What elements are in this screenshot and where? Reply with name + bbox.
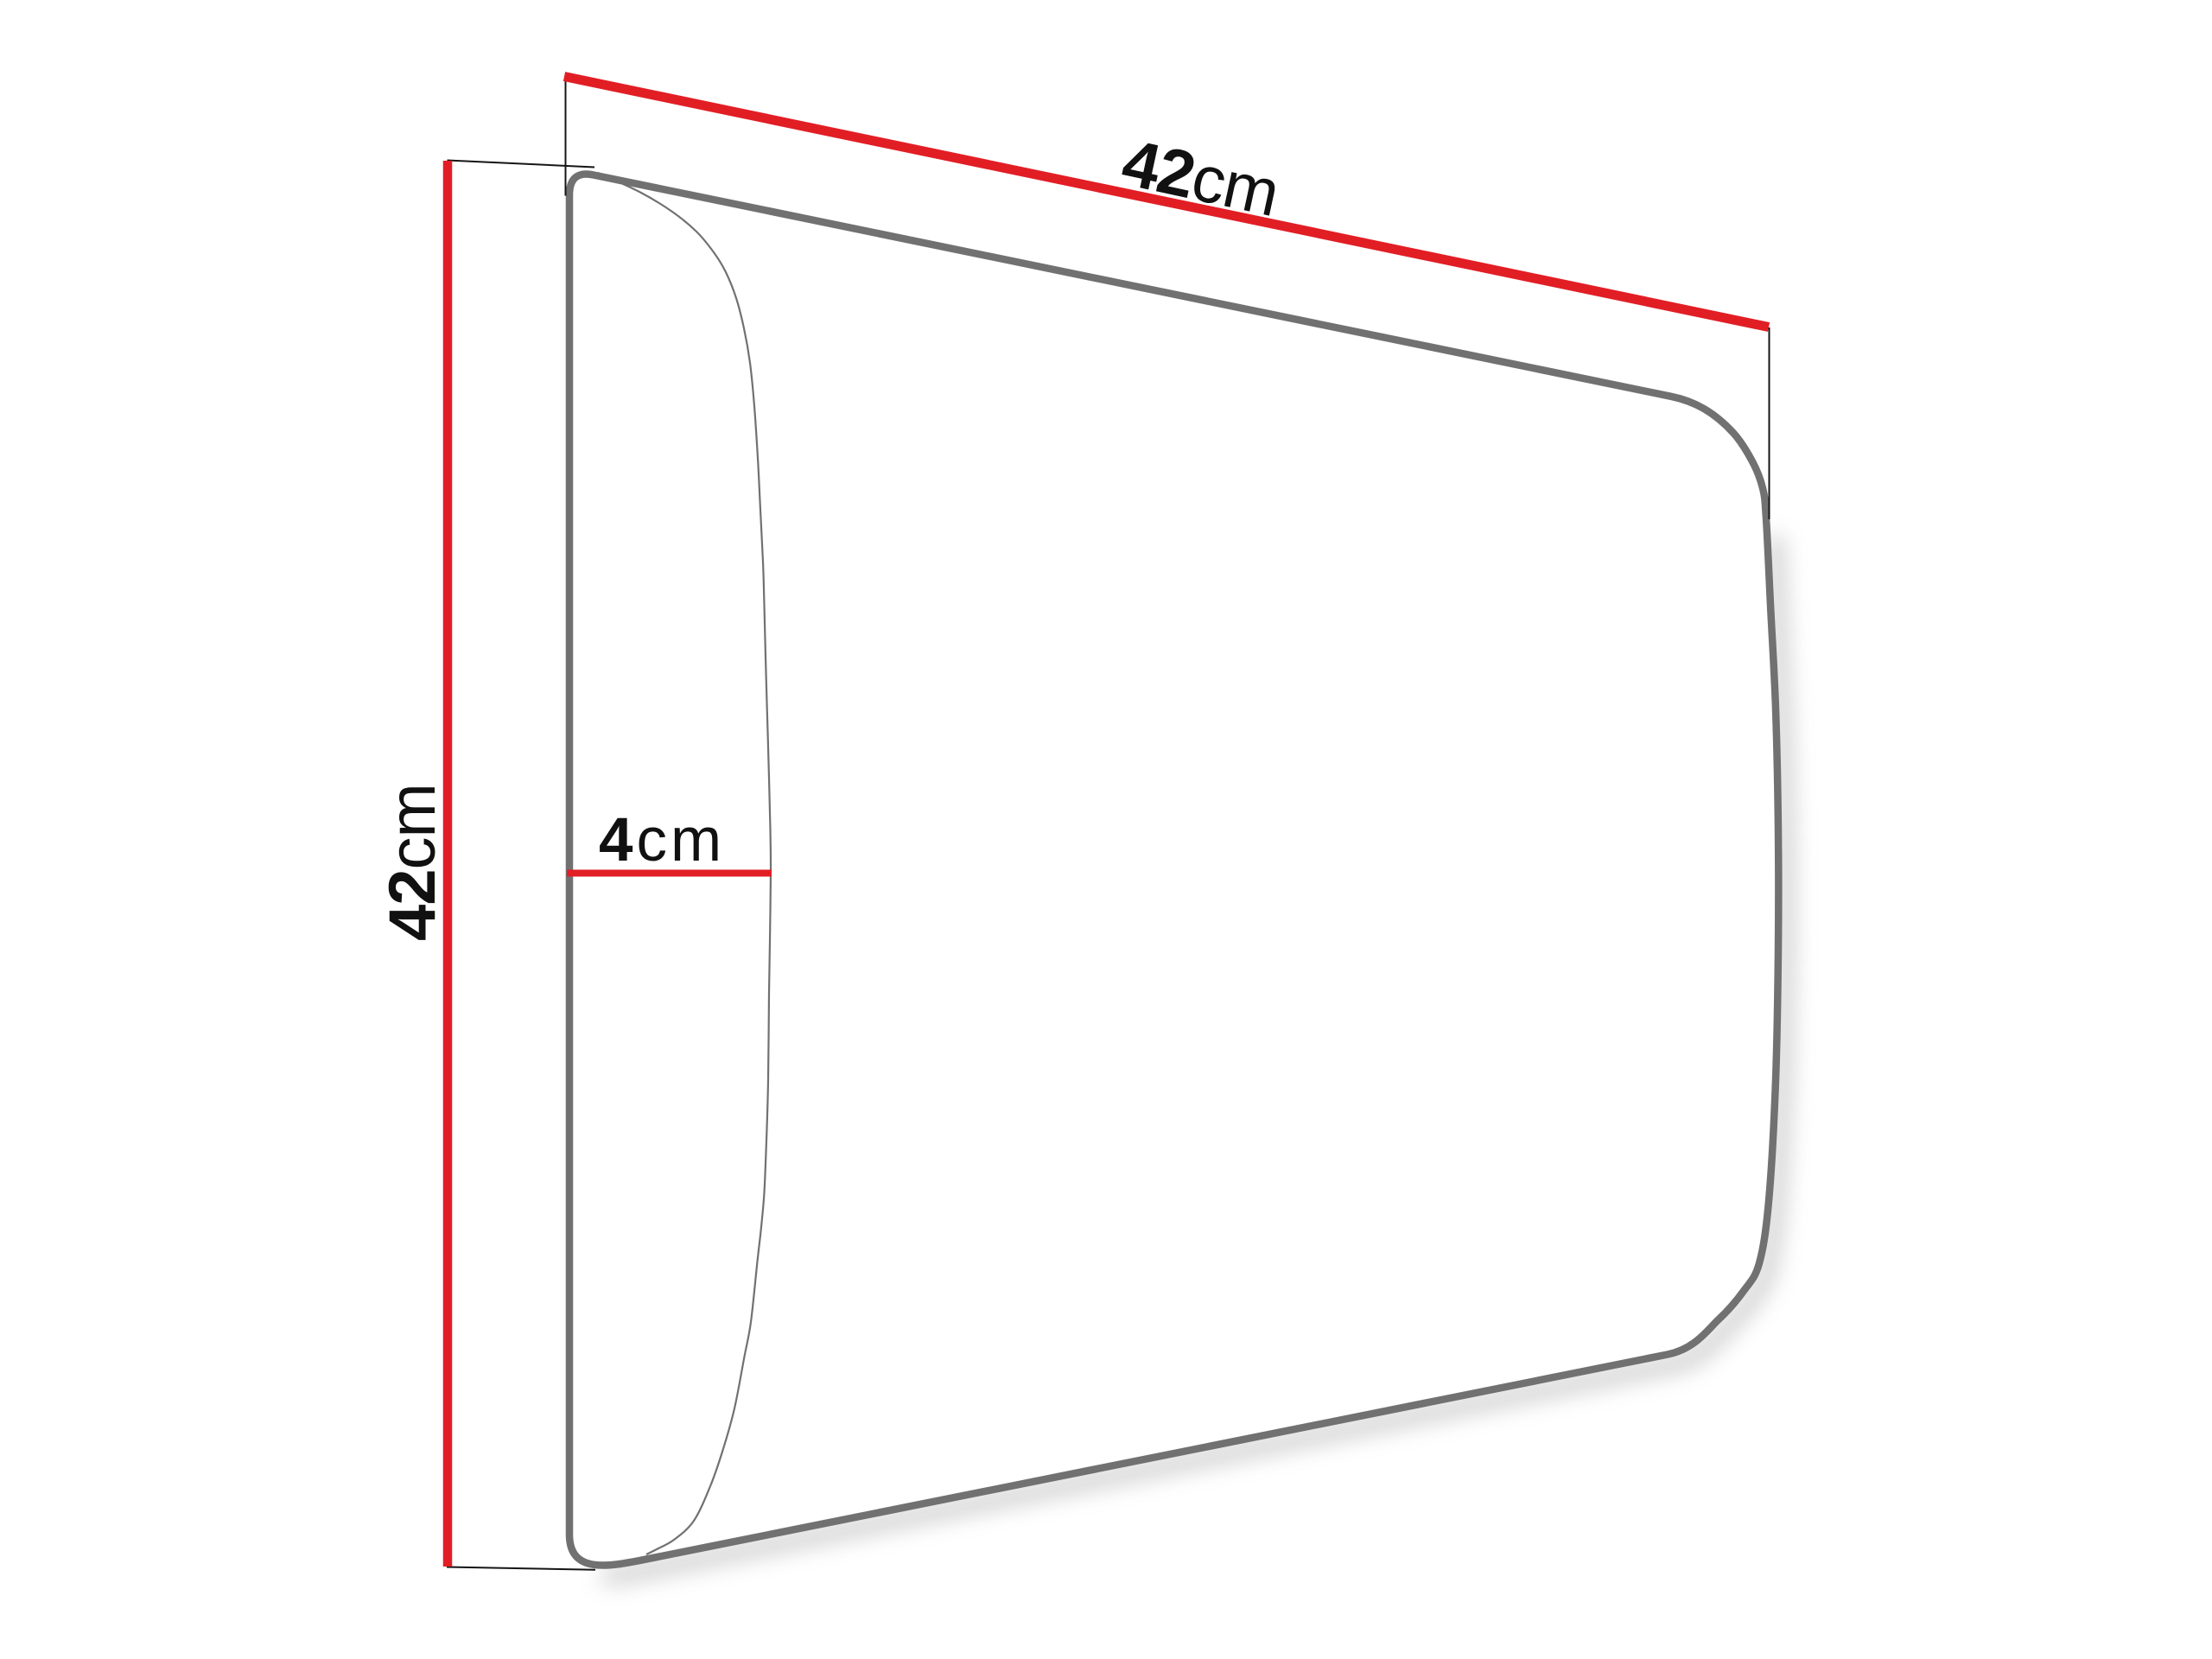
svg-text:42cm: 42cm — [376, 784, 449, 941]
svg-text:4cm: 4cm — [599, 806, 725, 874]
